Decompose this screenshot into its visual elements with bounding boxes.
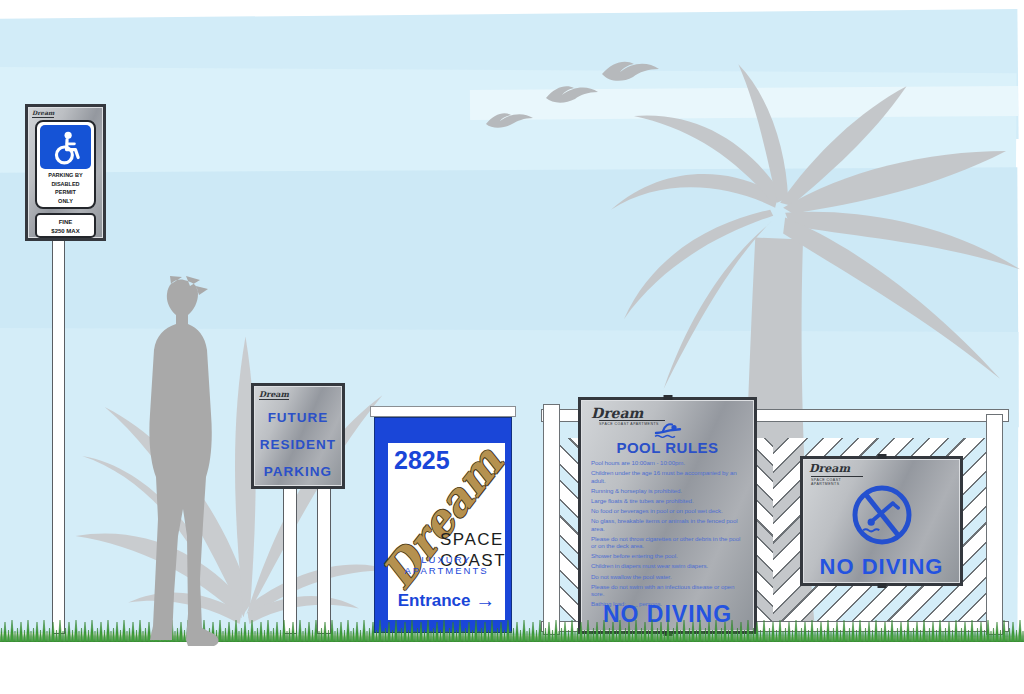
brand-logo: Dream bbox=[809, 463, 850, 474]
permit-text: PARKING BY DISABLED PERMIT ONLY bbox=[39, 171, 91, 205]
pool-rule: Large floats & tire tubes are prohibited… bbox=[591, 497, 744, 504]
property-subtitle: LUXURY APARTMENTS bbox=[388, 554, 505, 576]
brand-logo: Dream bbox=[32, 110, 54, 118]
no-diving-sign: Dream SPACE COAST APARTMENTS NO DIVING bbox=[800, 456, 963, 586]
pool-rule: Please do not swim with an infectious di… bbox=[591, 583, 744, 597]
pool-rule: No food or beverages in pool or on pool … bbox=[591, 507, 744, 514]
brand-logo: Dream bbox=[591, 406, 744, 420]
pool-rules-list: Pool hours are 10:00am - 10:00pm. Childr… bbox=[591, 459, 744, 607]
wheelchair-icon bbox=[48, 129, 84, 165]
mount-tab bbox=[877, 583, 886, 588]
pool-rules-sign: Dream SPACE COAST APARTMENTS POOL RULES … bbox=[578, 397, 757, 634]
mount-tab bbox=[877, 454, 886, 459]
handicap-sign-pole bbox=[52, 238, 65, 634]
handicap-symbol-panel bbox=[40, 125, 91, 169]
pool-rule: Children under the age 16 must be accomp… bbox=[591, 469, 744, 483]
pool-rule: Please do not throw cigarettes or other … bbox=[591, 535, 744, 549]
entrance-sign-face: 2825 Dream SPACE COAST LUXURY APARTMENTS… bbox=[388, 443, 505, 620]
arrow-right-icon: → bbox=[475, 589, 495, 611]
no-diving-icon bbox=[846, 479, 918, 555]
fine-plate: FINE $250 MAX bbox=[35, 213, 96, 238]
future-resident-parking-sign: Dream FUTURE RESIDENT PARKING bbox=[251, 383, 345, 489]
pool-rule: Do not swallow the pool water. bbox=[591, 573, 744, 580]
birds-silhouette bbox=[480, 58, 670, 138]
brand-logo: Dream bbox=[259, 390, 289, 400]
pool-rules-title: POOL RULES bbox=[591, 439, 744, 456]
handicap-parking-sign: Dream PARKING BY DISABLED PERMIT ONLY FI… bbox=[25, 104, 106, 241]
future-parking-text: FUTURE RESIDENT PARKING bbox=[254, 404, 342, 485]
fence-left-post bbox=[543, 404, 560, 635]
entrance-direction: Entrance → bbox=[388, 589, 505, 612]
mount-tab bbox=[663, 395, 672, 400]
fence-right-post bbox=[986, 414, 1003, 635]
handicap-permit-plate: PARKING BY DISABLED PERMIT ONLY bbox=[35, 120, 96, 209]
address-number: 2825 bbox=[394, 446, 450, 475]
future-sign-post-left bbox=[283, 488, 297, 634]
no-diving-label: NO DIVING bbox=[803, 554, 960, 580]
entrance-sign-cap bbox=[370, 406, 516, 417]
pool-rule: Running & horseplay is prohibited. bbox=[591, 487, 744, 494]
entrance-sign: 2825 Dream SPACE COAST LUXURY APARTMENTS… bbox=[374, 417, 512, 633]
pool-rule: Children in diapers must wear swim diape… bbox=[591, 562, 744, 569]
pool-rule: No glass, breakable items or animals in … bbox=[591, 517, 744, 531]
future-sign-post-right bbox=[317, 488, 331, 634]
person-silhouette bbox=[126, 272, 236, 662]
scene: Dream PARKING BY DISABLED PERMIT ONLY FI… bbox=[0, 0, 1024, 694]
pool-rule: Pool hours are 10:00am - 10:00pm. bbox=[591, 459, 744, 466]
pool-rule: Shower before entering the pool. bbox=[591, 552, 744, 559]
